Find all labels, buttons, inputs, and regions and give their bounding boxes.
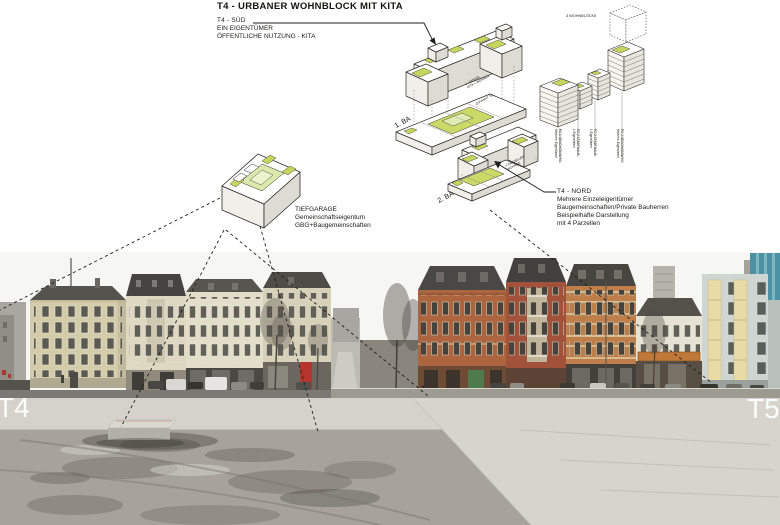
tiefgarage-line2: Gemeinschaftseigentum xyxy=(295,214,371,222)
t4-nord-line4: mit 4 Parzellen xyxy=(557,220,669,228)
green-shop-sign xyxy=(468,370,484,390)
t4-sued-heading: T4 - SÜD xyxy=(217,17,315,25)
montage-page: PZ.1 GESCHOSSWHG. Mehrere Eigentümer PZ.… xyxy=(0,0,780,525)
parcel-diagram-heading: 3 WOHNBLÖCKE xyxy=(566,14,597,18)
site-label-t4: T4 xyxy=(0,392,30,424)
building-g-banded-brick xyxy=(566,264,636,395)
tiefgarage-line1: TIEFGARAGE xyxy=(295,206,371,214)
building-h-awning xyxy=(636,298,702,395)
t4-nord-line1: Mehrere Einzeleigentümer xyxy=(557,196,669,204)
tiefgarage-block xyxy=(222,154,300,228)
building-a-beige xyxy=(30,278,126,388)
diagram-title: T4 - URBANER WOHNBLOCK MIT KITA xyxy=(217,1,403,12)
parcel-block-4 xyxy=(608,42,644,91)
t4-sued-line2: ÖFFENTLICHE NUTZUNG - KITA xyxy=(217,33,315,41)
ba1-building xyxy=(406,24,522,106)
parcel-label-3-line2: 1 Eigentümer xyxy=(589,129,593,149)
tiefgarage-line3: GBG+Baugemeinschaften xyxy=(295,222,371,230)
building-f-brick xyxy=(506,258,566,395)
t4-sued-arrowhead xyxy=(430,38,437,46)
parcel-labels: PZ.1 GESCHOSSWHG. Mehrere Eigentümer PZ.… xyxy=(554,129,624,163)
phase-2-label: 2. BA xyxy=(437,190,456,204)
callout-t4-sued: T4 - SÜD EIN EIGENTÜMER ÖFFENTLICHE NUTZ… xyxy=(217,17,315,41)
building-b-ornate xyxy=(126,274,186,393)
callout-t4-nord: T4 - NORD Mehrere Einzeleigentümer Bauge… xyxy=(557,188,669,228)
orange-awning xyxy=(638,352,700,361)
parcel-label-1-line2: Mehrere Eigentümer xyxy=(554,129,558,159)
vacant-lot xyxy=(0,398,780,525)
site-label-t5: T5 xyxy=(747,393,780,425)
parcel-label-4-line2: Mehrere Eigentümer xyxy=(616,129,620,159)
t4-nord-line2: Baugemeinschaften/Private Bauherren xyxy=(557,204,669,212)
street-gap xyxy=(331,308,360,392)
t4-nord-line3: Beispielhafte Darstellung xyxy=(557,212,669,220)
parcel-outline-block xyxy=(610,5,646,42)
t4-sued-line1: EIN EIGENTÜMER xyxy=(217,25,315,33)
photo xyxy=(0,252,780,525)
t4-nord-heading: T4 - NORD xyxy=(557,188,669,196)
building-e-brick xyxy=(418,266,506,395)
parcel-diagrams: PZ.1 GESCHOSSWHG. Mehrere Eigentümer PZ.… xyxy=(540,5,646,163)
callout-tiefgarage: TIEFGARAGE Gemeinschaftseigentum GBG+Bau… xyxy=(295,206,371,230)
parcel-label-2-line2: 1 Eigentümer xyxy=(572,129,576,149)
montage-graphics: PZ.1 GESCHOSSWHG. Mehrere Eigentümer PZ.… xyxy=(0,0,780,525)
building-c-cream xyxy=(186,279,263,393)
parcel-block-1 xyxy=(540,78,578,127)
